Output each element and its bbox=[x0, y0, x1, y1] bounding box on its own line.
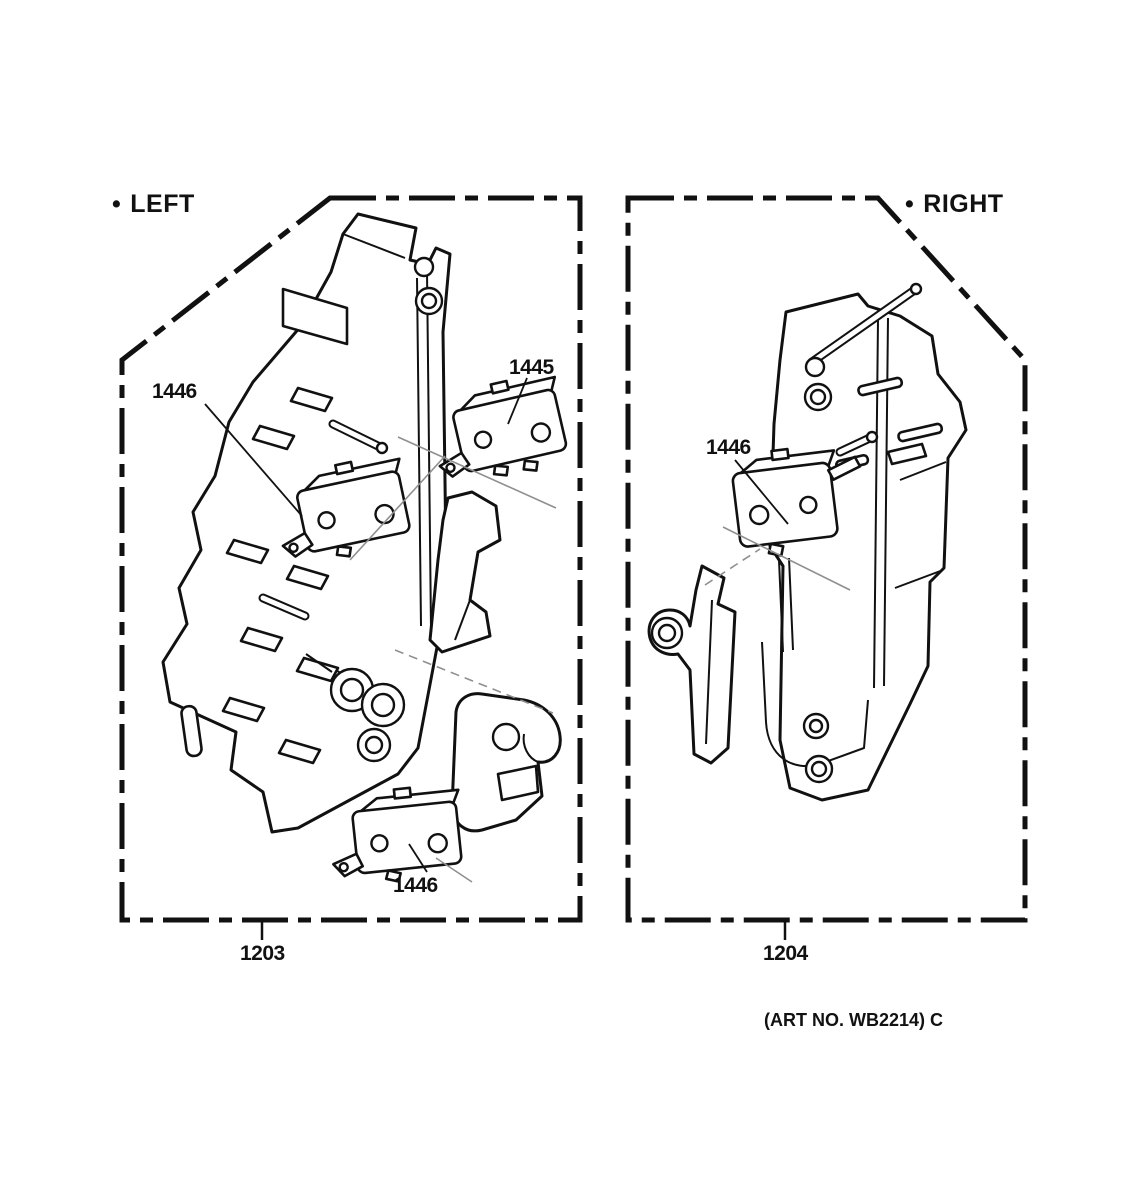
right-panel-title: •RIGHT bbox=[905, 190, 1004, 219]
right-panel-title-text: RIGHT bbox=[923, 190, 1003, 218]
callout-1446-lower: 1446 bbox=[393, 874, 438, 898]
callout-1446-right: 1446 bbox=[706, 436, 751, 460]
micro-switch-1445-drawing bbox=[425, 370, 575, 491]
bullet-icon: • bbox=[112, 190, 121, 218]
lever-arm-drawing bbox=[649, 566, 735, 763]
left-panel-title-text: LEFT bbox=[130, 190, 195, 218]
right-panel-part-number: 1204 bbox=[763, 942, 808, 966]
callout-1445: 1445 bbox=[509, 356, 554, 380]
left-panel-title: •LEFT bbox=[112, 190, 195, 219]
roller-latch-drawing bbox=[452, 694, 560, 831]
parts-diagram-page: •LEFT •RIGHT 1446 1445 1446 1446 1203 12… bbox=[0, 0, 1125, 1200]
callout-1446-upper: 1446 bbox=[152, 380, 197, 404]
exploded-parts-drawing bbox=[0, 0, 1125, 1200]
bullet-icon: • bbox=[905, 190, 914, 218]
left-panel-part-number: 1203 bbox=[240, 942, 285, 966]
art-number: (ART NO. WB2214) C bbox=[764, 1010, 943, 1031]
